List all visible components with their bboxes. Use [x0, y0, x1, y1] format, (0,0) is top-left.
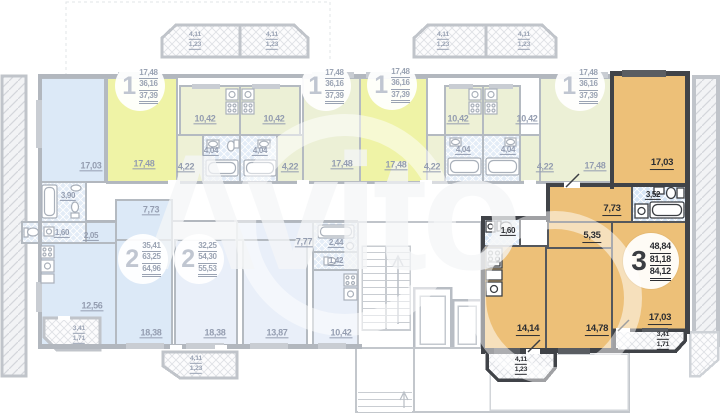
apartment-badge-2room: 2 35,4163,2564,96	[118, 234, 168, 284]
room-label-kitchen: 10,42	[515, 113, 538, 124]
room-label-hall: 4,22	[281, 161, 299, 172]
apartment-badge-1room: 1 17,4836,1637,39	[367, 60, 417, 110]
room-label-bath: 4,04	[252, 146, 268, 156]
room-label-hall: 7,73	[602, 204, 621, 216]
room-label-kitchen: 10,42	[329, 327, 352, 338]
room-label-kitchen-living: 14,14	[516, 324, 540, 336]
balcony-label: 4,111,23	[189, 30, 201, 50]
room-label-hall: 7,77	[295, 236, 313, 247]
room-label-bath: 4,04	[500, 145, 516, 155]
floorplan-screenshot: Avito 4,111,23 4,111,23 4,111,23 4,111,2…	[0, 0, 720, 415]
room-label-bedroom: 17,03	[648, 313, 672, 325]
room-label-wc: 1,42	[328, 256, 344, 266]
room-label-hall: 4,22	[423, 161, 441, 172]
room-label-wc: 1,60	[500, 226, 516, 236]
room-label-hall-small: 2,05	[83, 231, 99, 241]
room-label-bath: 3,52	[645, 190, 661, 200]
apartment-badge-3room: 3 48,8481,1884,12	[623, 233, 679, 289]
room-label-bath: 2,44	[328, 238, 344, 248]
room-label-wc: 1,60	[54, 228, 70, 238]
apartment-badge-1room: 1 17,4836,1637,39	[301, 61, 351, 111]
room-label-bath: 3,90	[60, 191, 76, 201]
apartment-badge-1room: 1 17,4836,1637,39	[115, 61, 165, 111]
room-label-bath: 4,04	[203, 146, 219, 156]
balcony-label: 4,111,23	[190, 354, 202, 374]
apartment-badge-1room: 1 17,4836,1637,39	[555, 61, 605, 111]
room-label-living: 17,48	[330, 158, 353, 169]
balcony-label: 4,111,23	[518, 30, 530, 50]
room-label-living: 17,48	[384, 159, 407, 170]
room-label-kitchen: 10,42	[262, 113, 285, 124]
balcony-label: 4,111,23	[266, 30, 278, 50]
balcony-label: 4,111,23	[437, 30, 449, 50]
room-label-corridor: 5,35	[582, 231, 601, 243]
room-label-bedroom: 17,03	[79, 160, 102, 171]
room-label-living: 18,38	[139, 327, 162, 338]
right-section-wall	[694, 77, 718, 345]
top-balconies	[162, 25, 556, 57]
room-label-hall: 7,73	[142, 204, 160, 215]
room-label-bath: 4,04	[455, 145, 471, 155]
balcony-label: 3,411,71	[657, 330, 669, 350]
room-label-bedroom: 13,87	[265, 327, 288, 338]
balcony-label: 3,411,71	[73, 324, 85, 344]
room-label-hall: 4,22	[536, 161, 554, 172]
room-label-bedroom: 14,78	[585, 324, 609, 336]
room-label-living: 17,48	[132, 158, 155, 169]
room-label-kitchen: 10,42	[446, 113, 469, 124]
room-label-hall: 4,22	[177, 161, 195, 172]
room-label-living: 17,48	[583, 160, 606, 171]
room-label-kitchen: 12,56	[80, 300, 103, 311]
room-label-living: 18,38	[203, 327, 226, 338]
room-label-bedroom: 17,03	[650, 158, 674, 170]
balcony-label: 4,111,23	[515, 355, 527, 375]
room-label-kitchen: 10,42	[193, 113, 216, 124]
apartment-badge-2room: 2 32,2554,3055,53	[174, 234, 224, 284]
right-section-balcony	[690, 332, 718, 376]
